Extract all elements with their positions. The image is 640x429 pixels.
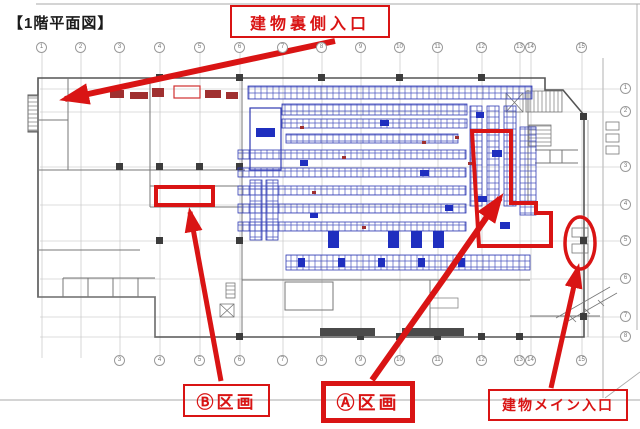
section-a-outline — [472, 131, 551, 246]
floor-plan-page: 【1階平面図】 建物裏側入口 Ⓑ区画 Ⓐ区画 建物メイン入口 123456789… — [0, 0, 640, 429]
back-entrance-label: 建物裏側入口 — [230, 5, 390, 38]
main-entrance-arrow — [551, 268, 578, 388]
section-b-outline — [156, 187, 213, 205]
main-entrance-label: 建物メイン入口 — [488, 389, 628, 421]
plan-title: 【1階平面図】 — [8, 12, 113, 33]
section-b-arrow — [190, 212, 221, 381]
section-a-label: Ⓐ区画 — [321, 381, 415, 423]
sheet-lines — [0, 4, 640, 400]
section-b-label: Ⓑ区画 — [183, 384, 270, 417]
floor-plan-drawing — [0, 0, 640, 429]
